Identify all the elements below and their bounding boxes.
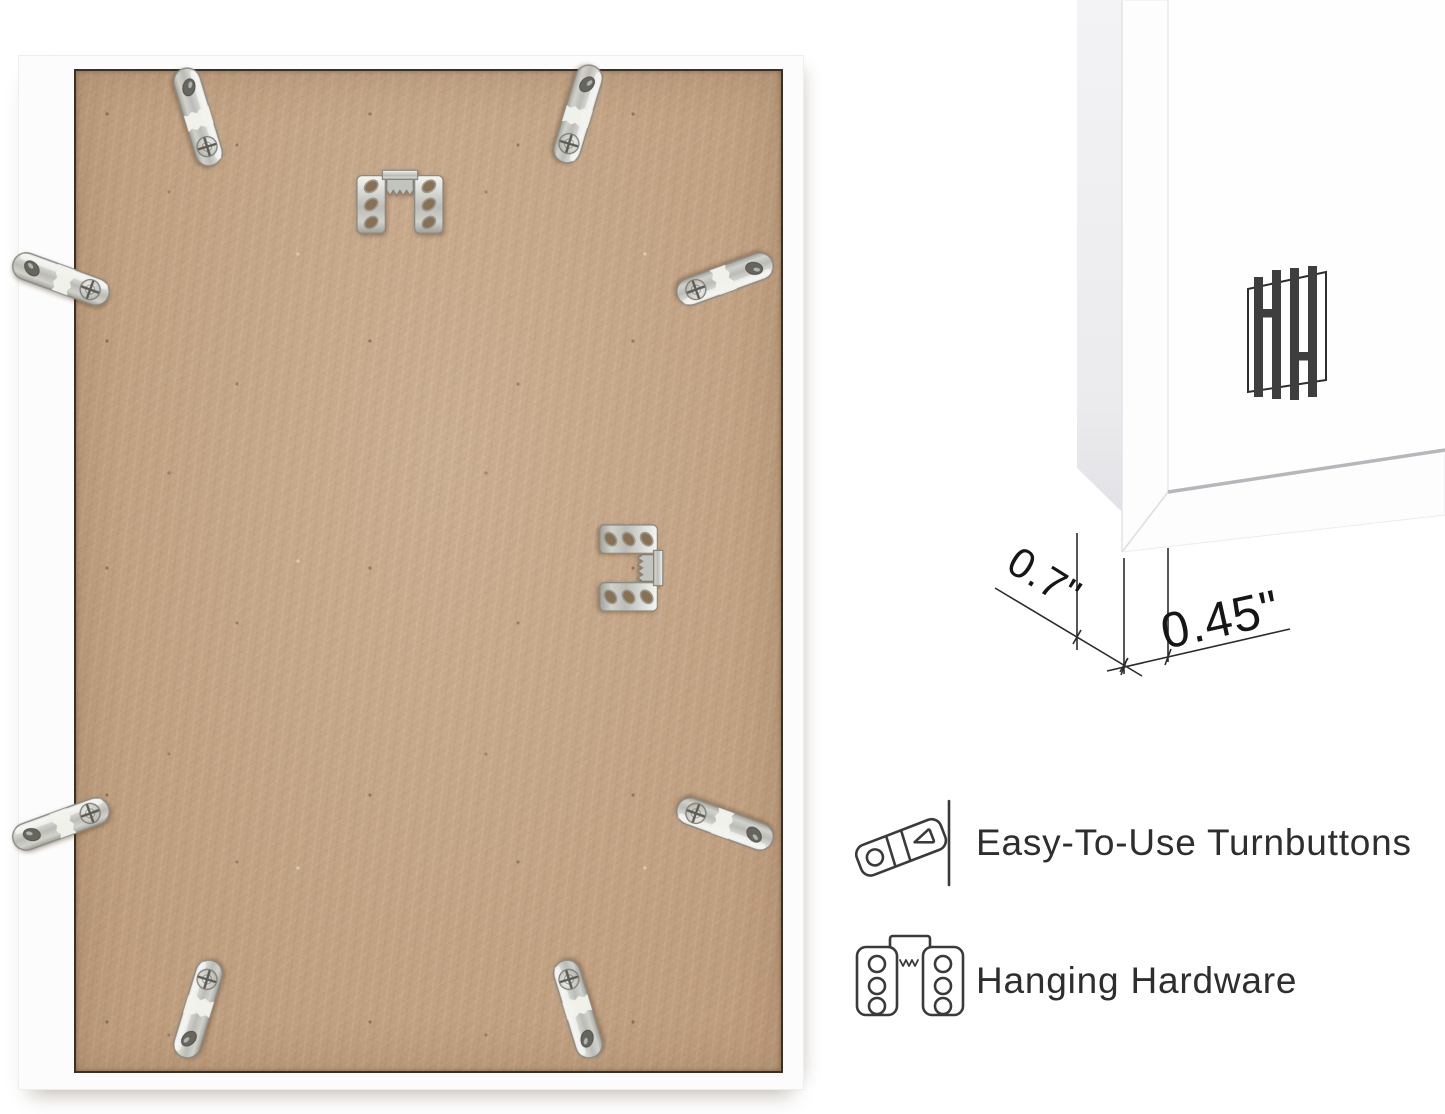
turnbutton-outline-icon bbox=[854, 795, 966, 895]
sawtooth-hanger bbox=[356, 168, 444, 236]
frame-side-face bbox=[1077, 0, 1122, 512]
feature-label: Hanging Hardware bbox=[976, 958, 1297, 1004]
face-width-dimension-label: 0.45" bbox=[1156, 579, 1285, 660]
mat-area bbox=[1168, 0, 1445, 492]
product-image: 0.7" 0.45" Easy-To-Use Turnbuttons bbox=[0, 0, 1445, 1114]
feature-label: Easy-To-Use Turnbuttons bbox=[976, 820, 1412, 866]
sawtooth-hanger bbox=[597, 524, 665, 612]
frame-back-photo bbox=[18, 55, 804, 1090]
frame-corner-detail: 0.7" 0.45" bbox=[960, 0, 1445, 720]
hanging-hardware-outline-icon bbox=[854, 932, 966, 1020]
